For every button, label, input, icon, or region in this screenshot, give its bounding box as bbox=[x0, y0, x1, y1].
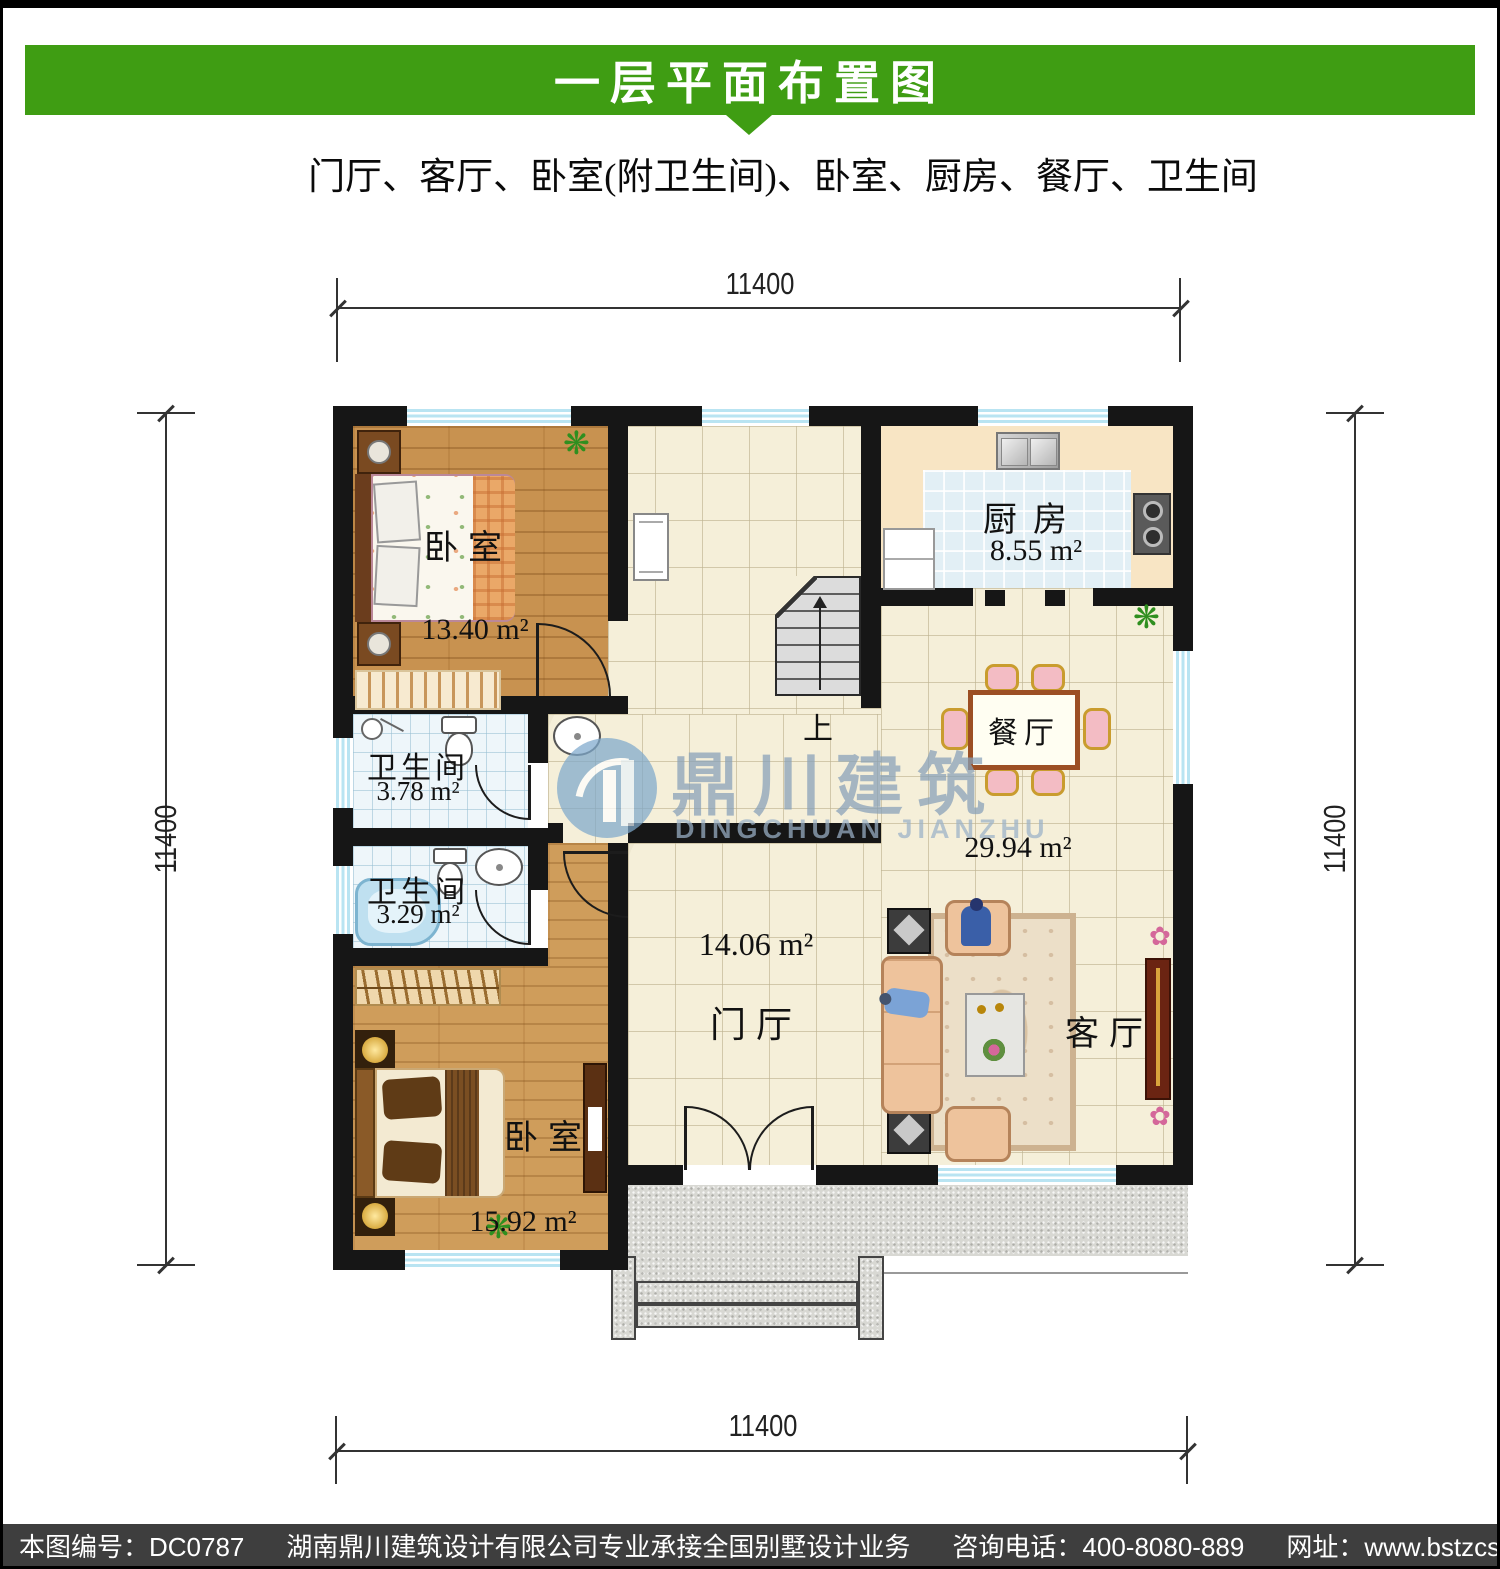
fridge-line bbox=[885, 558, 933, 560]
room-list-subtitle: 门厅、客厅、卧室(附卫生间)、卧室、厨房、餐厅、卫生间 bbox=[3, 146, 1500, 200]
dining-area: 29.94 m² bbox=[938, 831, 1098, 865]
side-table-top bbox=[893, 914, 924, 945]
kitchen-door-jamb bbox=[985, 590, 1005, 606]
dining-chair bbox=[941, 708, 969, 750]
kitchen-area: 8.55 m² bbox=[956, 534, 1116, 568]
page-title: 一层平面布置图 bbox=[554, 47, 946, 113]
bed2-headboard bbox=[355, 1068, 375, 1198]
nightstand-icon bbox=[357, 430, 401, 474]
dining-table: 餐厅 bbox=[968, 690, 1080, 770]
flower-vase-icon bbox=[981, 1037, 1007, 1063]
side-table-icon bbox=[887, 1108, 931, 1154]
dimension-right-value: 11400 bbox=[1317, 761, 1353, 917]
dining-chair bbox=[985, 768, 1019, 796]
person-head bbox=[879, 992, 893, 1006]
foyer-label: 门厅 bbox=[696, 996, 816, 1048]
shower-icon bbox=[361, 718, 383, 740]
header-pointer-triangle bbox=[726, 115, 772, 135]
dimension-top-value: 11400 bbox=[637, 266, 883, 302]
bath2-area: 3.29 m² bbox=[358, 899, 478, 930]
window-right-dining bbox=[1173, 651, 1193, 784]
dimension-ext-top-left bbox=[336, 278, 338, 362]
window-bottom-bedroom2 bbox=[405, 1250, 560, 1270]
basin-drain bbox=[496, 864, 503, 871]
kitchen-sink-icon bbox=[996, 432, 1060, 470]
wall-kitchen-left bbox=[861, 426, 881, 708]
dimension-bottom-value: 11400 bbox=[640, 1408, 886, 1444]
stove-icon bbox=[1133, 493, 1171, 555]
basin-icon bbox=[553, 716, 601, 756]
wall-bath-divider bbox=[353, 828, 548, 846]
wardrobe-icon bbox=[355, 968, 501, 1006]
wardrobe-rail bbox=[357, 987, 499, 989]
bed1-headboard bbox=[355, 474, 371, 622]
dimension-line-bottom bbox=[336, 1450, 1188, 1452]
window-top-bedroom1 bbox=[407, 406, 571, 426]
plant-icon: ❋ bbox=[1133, 602, 1160, 632]
porch-step-1 bbox=[636, 1281, 858, 1304]
porch-platform bbox=[611, 1185, 1188, 1256]
cabinet-line bbox=[639, 521, 663, 523]
dimension-ext-top-right bbox=[1179, 278, 1181, 362]
lamp-glow bbox=[362, 1037, 388, 1063]
living-label: 客厅 bbox=[1049, 1006, 1169, 1055]
phone: 咨询电话：400-8080-889 bbox=[952, 1527, 1244, 1564]
dining-label: 餐厅 bbox=[988, 708, 1060, 752]
sink-basin bbox=[1001, 438, 1028, 466]
window-bottom-living bbox=[938, 1165, 1116, 1185]
pillow-icon bbox=[382, 1140, 443, 1184]
entry-door-right-leaf bbox=[811, 1106, 814, 1170]
company-name: 湖南鼎川建筑设计有限公司专业承接全国别墅设计业务 bbox=[286, 1527, 910, 1564]
bath1-door-leaf bbox=[528, 765, 531, 820]
nightlamp-icon bbox=[355, 1196, 395, 1236]
wall-corridor bbox=[628, 823, 881, 843]
cup-icon bbox=[995, 1003, 1004, 1012]
dining-chair bbox=[985, 664, 1019, 692]
fridge-icon bbox=[883, 528, 935, 590]
window-top-hall bbox=[702, 406, 809, 426]
kitchen-door-jamb bbox=[1045, 590, 1065, 606]
basin-icon bbox=[475, 848, 523, 886]
bath2-door-leaf bbox=[528, 890, 531, 945]
wall-kitchen-bottom-left bbox=[881, 588, 973, 606]
footer-bar: 本图编号：DC0787 湖南鼎川建筑设计有限公司专业承接全国别墅设计业务 咨询电… bbox=[3, 1524, 1497, 1566]
window-left-bath2 bbox=[333, 866, 353, 934]
dining-chair bbox=[1083, 708, 1111, 750]
porch-pillar-right bbox=[858, 1256, 884, 1340]
dining-chair bbox=[1031, 664, 1065, 692]
porch-lower bbox=[611, 1256, 881, 1283]
bedroom2-area: 15.92 m² bbox=[443, 1205, 603, 1239]
person-head bbox=[970, 898, 983, 911]
lamp-icon bbox=[367, 632, 391, 656]
wall-left bbox=[333, 406, 353, 1270]
person-icon bbox=[961, 906, 991, 946]
sofa-armchair bbox=[945, 1106, 1011, 1162]
wall-bath1-right bbox=[528, 714, 548, 763]
wall-corridor-stub bbox=[548, 823, 563, 843]
bed2-blanket bbox=[445, 1070, 479, 1196]
side-table-icon bbox=[887, 908, 931, 954]
bedroom1-rug bbox=[355, 670, 501, 710]
lamp-glow bbox=[362, 1203, 388, 1229]
sheet-number: 本图编号：DC0787 bbox=[19, 1527, 244, 1564]
basin-drain bbox=[574, 733, 581, 740]
pillow-icon bbox=[382, 1076, 443, 1120]
bedroom2-door-leaf bbox=[563, 851, 628, 854]
burner bbox=[1143, 501, 1163, 521]
dimension-line-top bbox=[337, 307, 1181, 309]
dimension-line-right bbox=[1354, 413, 1356, 1266]
window-left-bath1 bbox=[333, 738, 353, 808]
wall-bath2-bottom bbox=[353, 948, 548, 966]
sink-basin bbox=[1030, 438, 1057, 466]
cabinet-icon bbox=[633, 513, 669, 581]
stairs-direction-line bbox=[819, 606, 821, 690]
bedroom1-label: 卧室 bbox=[408, 520, 528, 569]
nightlamp-icon bbox=[355, 1030, 395, 1070]
wall-right bbox=[1173, 406, 1193, 1185]
stairs-up-label: 上 bbox=[788, 704, 848, 748]
header-bar: 一层平面布置图 bbox=[25, 45, 1475, 115]
plant-icon: ❋ bbox=[563, 428, 590, 458]
bedroom2-label: 卧室 bbox=[488, 1110, 608, 1159]
dining-chair bbox=[1031, 768, 1065, 796]
terrace-edge bbox=[884, 1248, 1188, 1274]
lamp-icon bbox=[367, 440, 391, 464]
stairs-diagonal-cut bbox=[775, 576, 817, 618]
floor-plan: 上 ❋ 卧室 13.40 m² 卫生间 3. bbox=[333, 406, 1193, 1270]
website: 网址：www.bstzcs.com bbox=[1286, 1527, 1500, 1564]
foyer-area: 14.06 m² bbox=[676, 926, 836, 963]
stairs-arrow-head bbox=[813, 596, 827, 608]
flower-icon: ✿ bbox=[1149, 1104, 1171, 1128]
wall-bedroom1-right bbox=[608, 426, 628, 621]
cup-icon bbox=[977, 1005, 986, 1014]
side-table-top bbox=[893, 1114, 924, 1145]
window-top-kitchen bbox=[978, 406, 1108, 426]
entry-door-left-leaf bbox=[684, 1106, 687, 1170]
sofa-main bbox=[881, 956, 943, 1114]
flower-icon: ✿ bbox=[1149, 924, 1171, 948]
wall-bath2-right bbox=[528, 846, 548, 890]
bedroom1-area: 13.40 m² bbox=[395, 613, 555, 647]
burner bbox=[1143, 527, 1163, 547]
porch-step-2 bbox=[636, 1304, 858, 1328]
coffee-table bbox=[965, 993, 1025, 1077]
dimension-left-value: 11400 bbox=[148, 761, 184, 917]
floor-plan-sheet: 一层平面布置图 门厅、客厅、卧室(附卫生间)、卧室、厨房、餐厅、卫生间 1140… bbox=[0, 0, 1500, 1569]
cabinet-line bbox=[639, 571, 663, 573]
bath1-area: 3.78 m² bbox=[358, 776, 478, 807]
